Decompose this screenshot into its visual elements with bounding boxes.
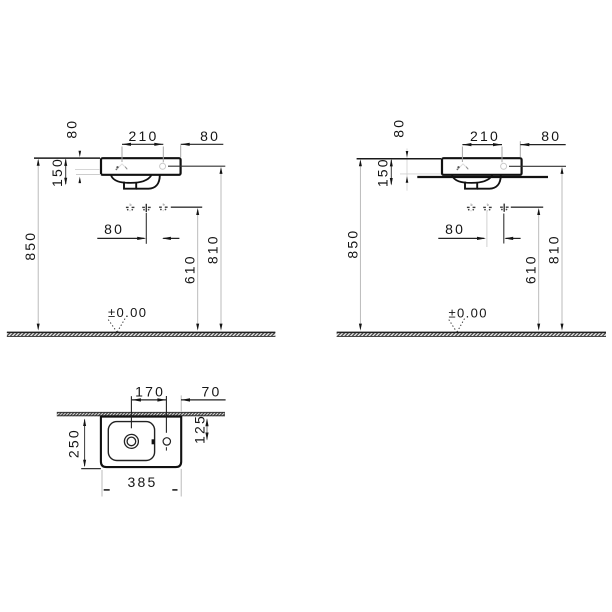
svg-text:210: 210 xyxy=(129,128,159,144)
svg-text:80: 80 xyxy=(390,118,406,138)
svg-text:610: 610 xyxy=(181,254,197,284)
svg-text:170: 170 xyxy=(135,384,165,400)
svg-text:850: 850 xyxy=(345,229,361,259)
svg-text:385: 385 xyxy=(128,474,158,490)
svg-text:±0.00: ±0.00 xyxy=(108,305,147,320)
svg-text:80: 80 xyxy=(200,128,220,144)
svg-text:80: 80 xyxy=(541,128,561,144)
svg-text:80: 80 xyxy=(445,221,465,237)
svg-text:610: 610 xyxy=(522,254,538,284)
svg-text:125: 125 xyxy=(192,414,208,444)
svg-text:250: 250 xyxy=(65,428,81,458)
svg-text:70: 70 xyxy=(202,383,222,399)
svg-text:±0.00: ±0.00 xyxy=(448,305,487,320)
svg-text:150: 150 xyxy=(49,157,65,187)
svg-text:810: 810 xyxy=(204,234,220,264)
svg-text:810: 810 xyxy=(545,234,561,264)
svg-text:80: 80 xyxy=(64,119,80,139)
svg-text:150: 150 xyxy=(375,157,391,187)
svg-text:80: 80 xyxy=(104,221,124,237)
svg-text:850: 850 xyxy=(22,231,38,261)
svg-text:210: 210 xyxy=(470,128,500,144)
